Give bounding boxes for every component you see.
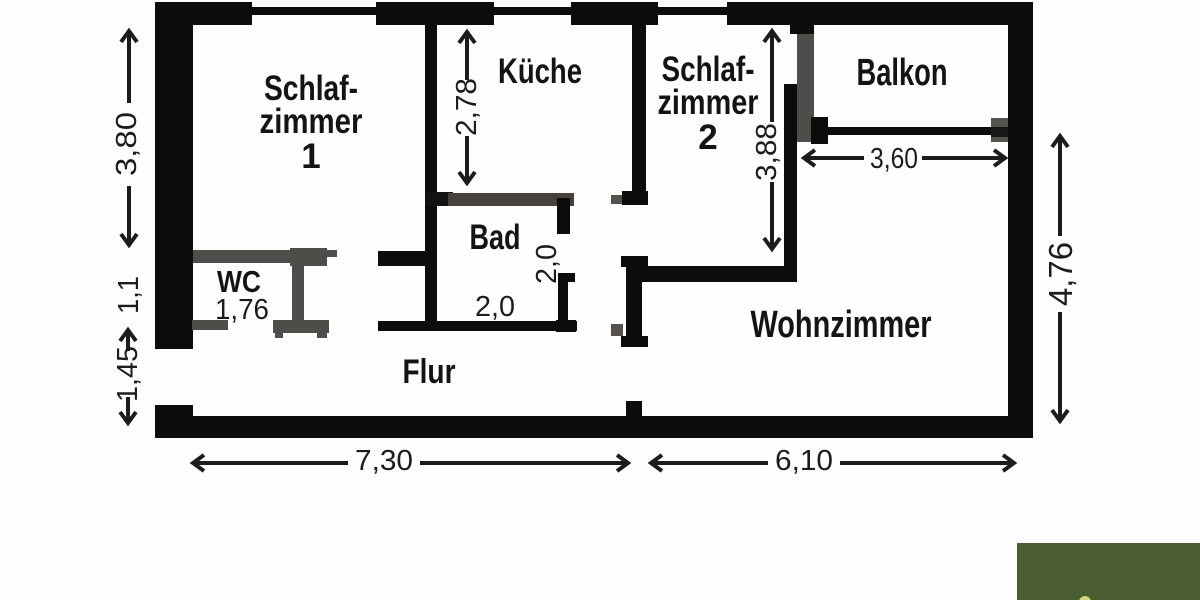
svg-text:1: 1 [301, 137, 320, 176]
svg-text:1,76: 1,76 [215, 294, 269, 326]
svg-text:2: 2 [698, 118, 717, 157]
svg-text:Flur: Flur [403, 353, 456, 391]
svg-text:Küche: Küche [498, 52, 582, 91]
svg-text:Balkon: Balkon [857, 52, 948, 94]
svg-text:2,78: 2,78 [451, 78, 483, 136]
svg-text:7,30: 7,30 [355, 445, 413, 477]
svg-text:1,45: 1,45 [112, 346, 144, 402]
svg-text:1,1: 1,1 [113, 276, 145, 314]
svg-text:Wohnzimmer: Wohnzimmer [751, 304, 932, 346]
svg-text:Bad: Bad [470, 218, 521, 257]
svg-text:3,60: 3,60 [870, 143, 918, 175]
svg-text:2,0: 2,0 [531, 244, 563, 284]
svg-text:4,76: 4,76 [1042, 242, 1079, 306]
svg-text:zimmer: zimmer [658, 83, 759, 122]
svg-text:6,10: 6,10 [775, 445, 833, 477]
svg-text:2,0: 2,0 [475, 291, 515, 323]
svg-text:3,88: 3,88 [751, 123, 783, 181]
svg-text:zimmer: zimmer [260, 102, 363, 141]
svg-text:3,80: 3,80 [111, 112, 143, 176]
